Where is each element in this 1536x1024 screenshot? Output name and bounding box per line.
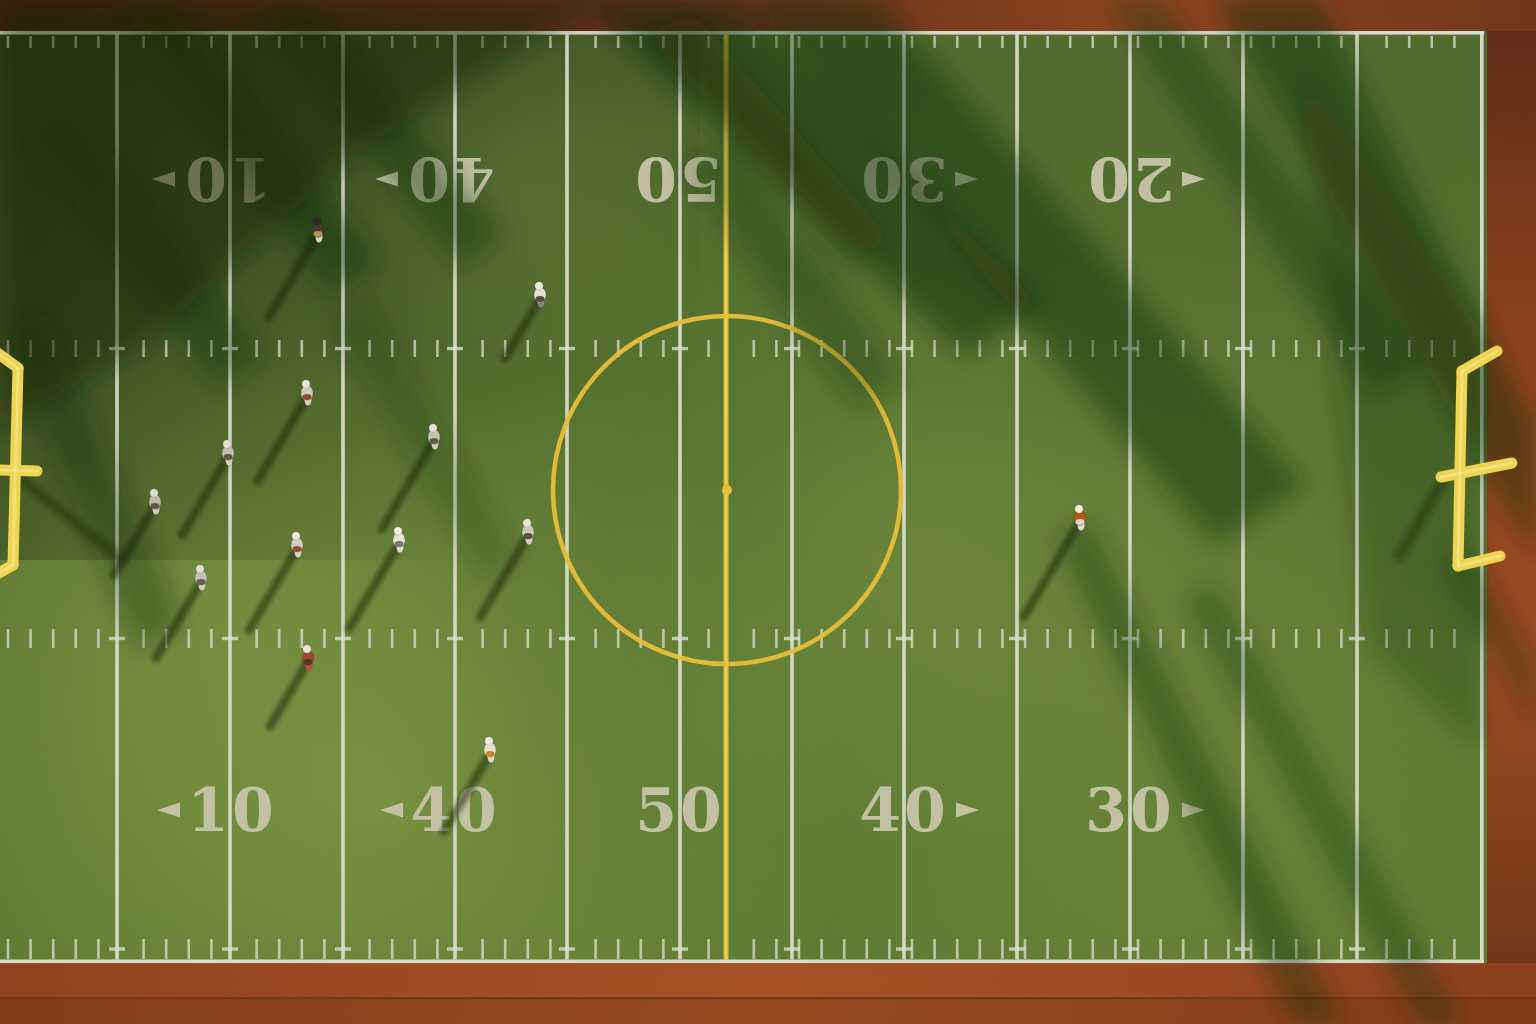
film-grain bbox=[0, 0, 1536, 1024]
aerial-football-field-photo: 10405030201040504030 bbox=[0, 0, 1536, 1024]
field-scene: 10405030201040504030 bbox=[0, 0, 1536, 1024]
